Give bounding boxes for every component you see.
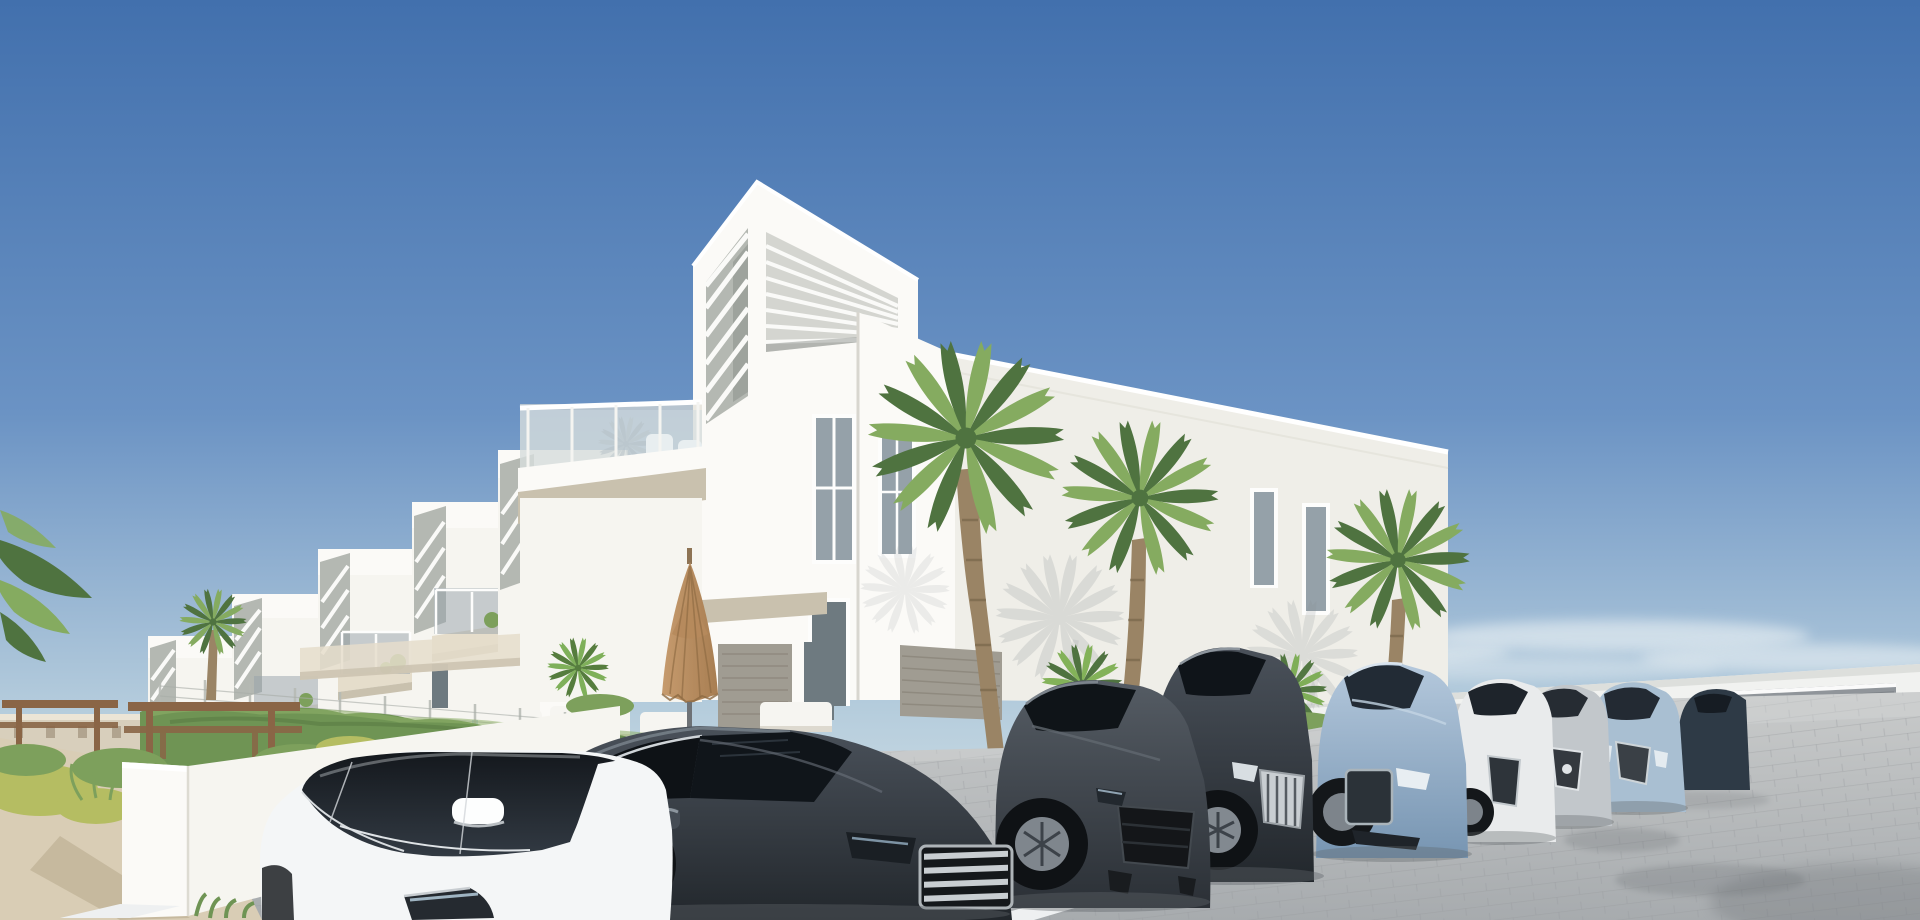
side-window [1250,488,1278,588]
umbrella-finial [687,548,692,564]
side-window [1302,503,1330,615]
car-graphite-fastback [990,680,1210,912]
tower-window-upper [812,414,856,564]
render-canvas [0,0,1920,920]
architectural-render-image [0,0,1920,920]
car-dark-compact [1676,689,1750,790]
car-white-sedan [260,750,673,920]
